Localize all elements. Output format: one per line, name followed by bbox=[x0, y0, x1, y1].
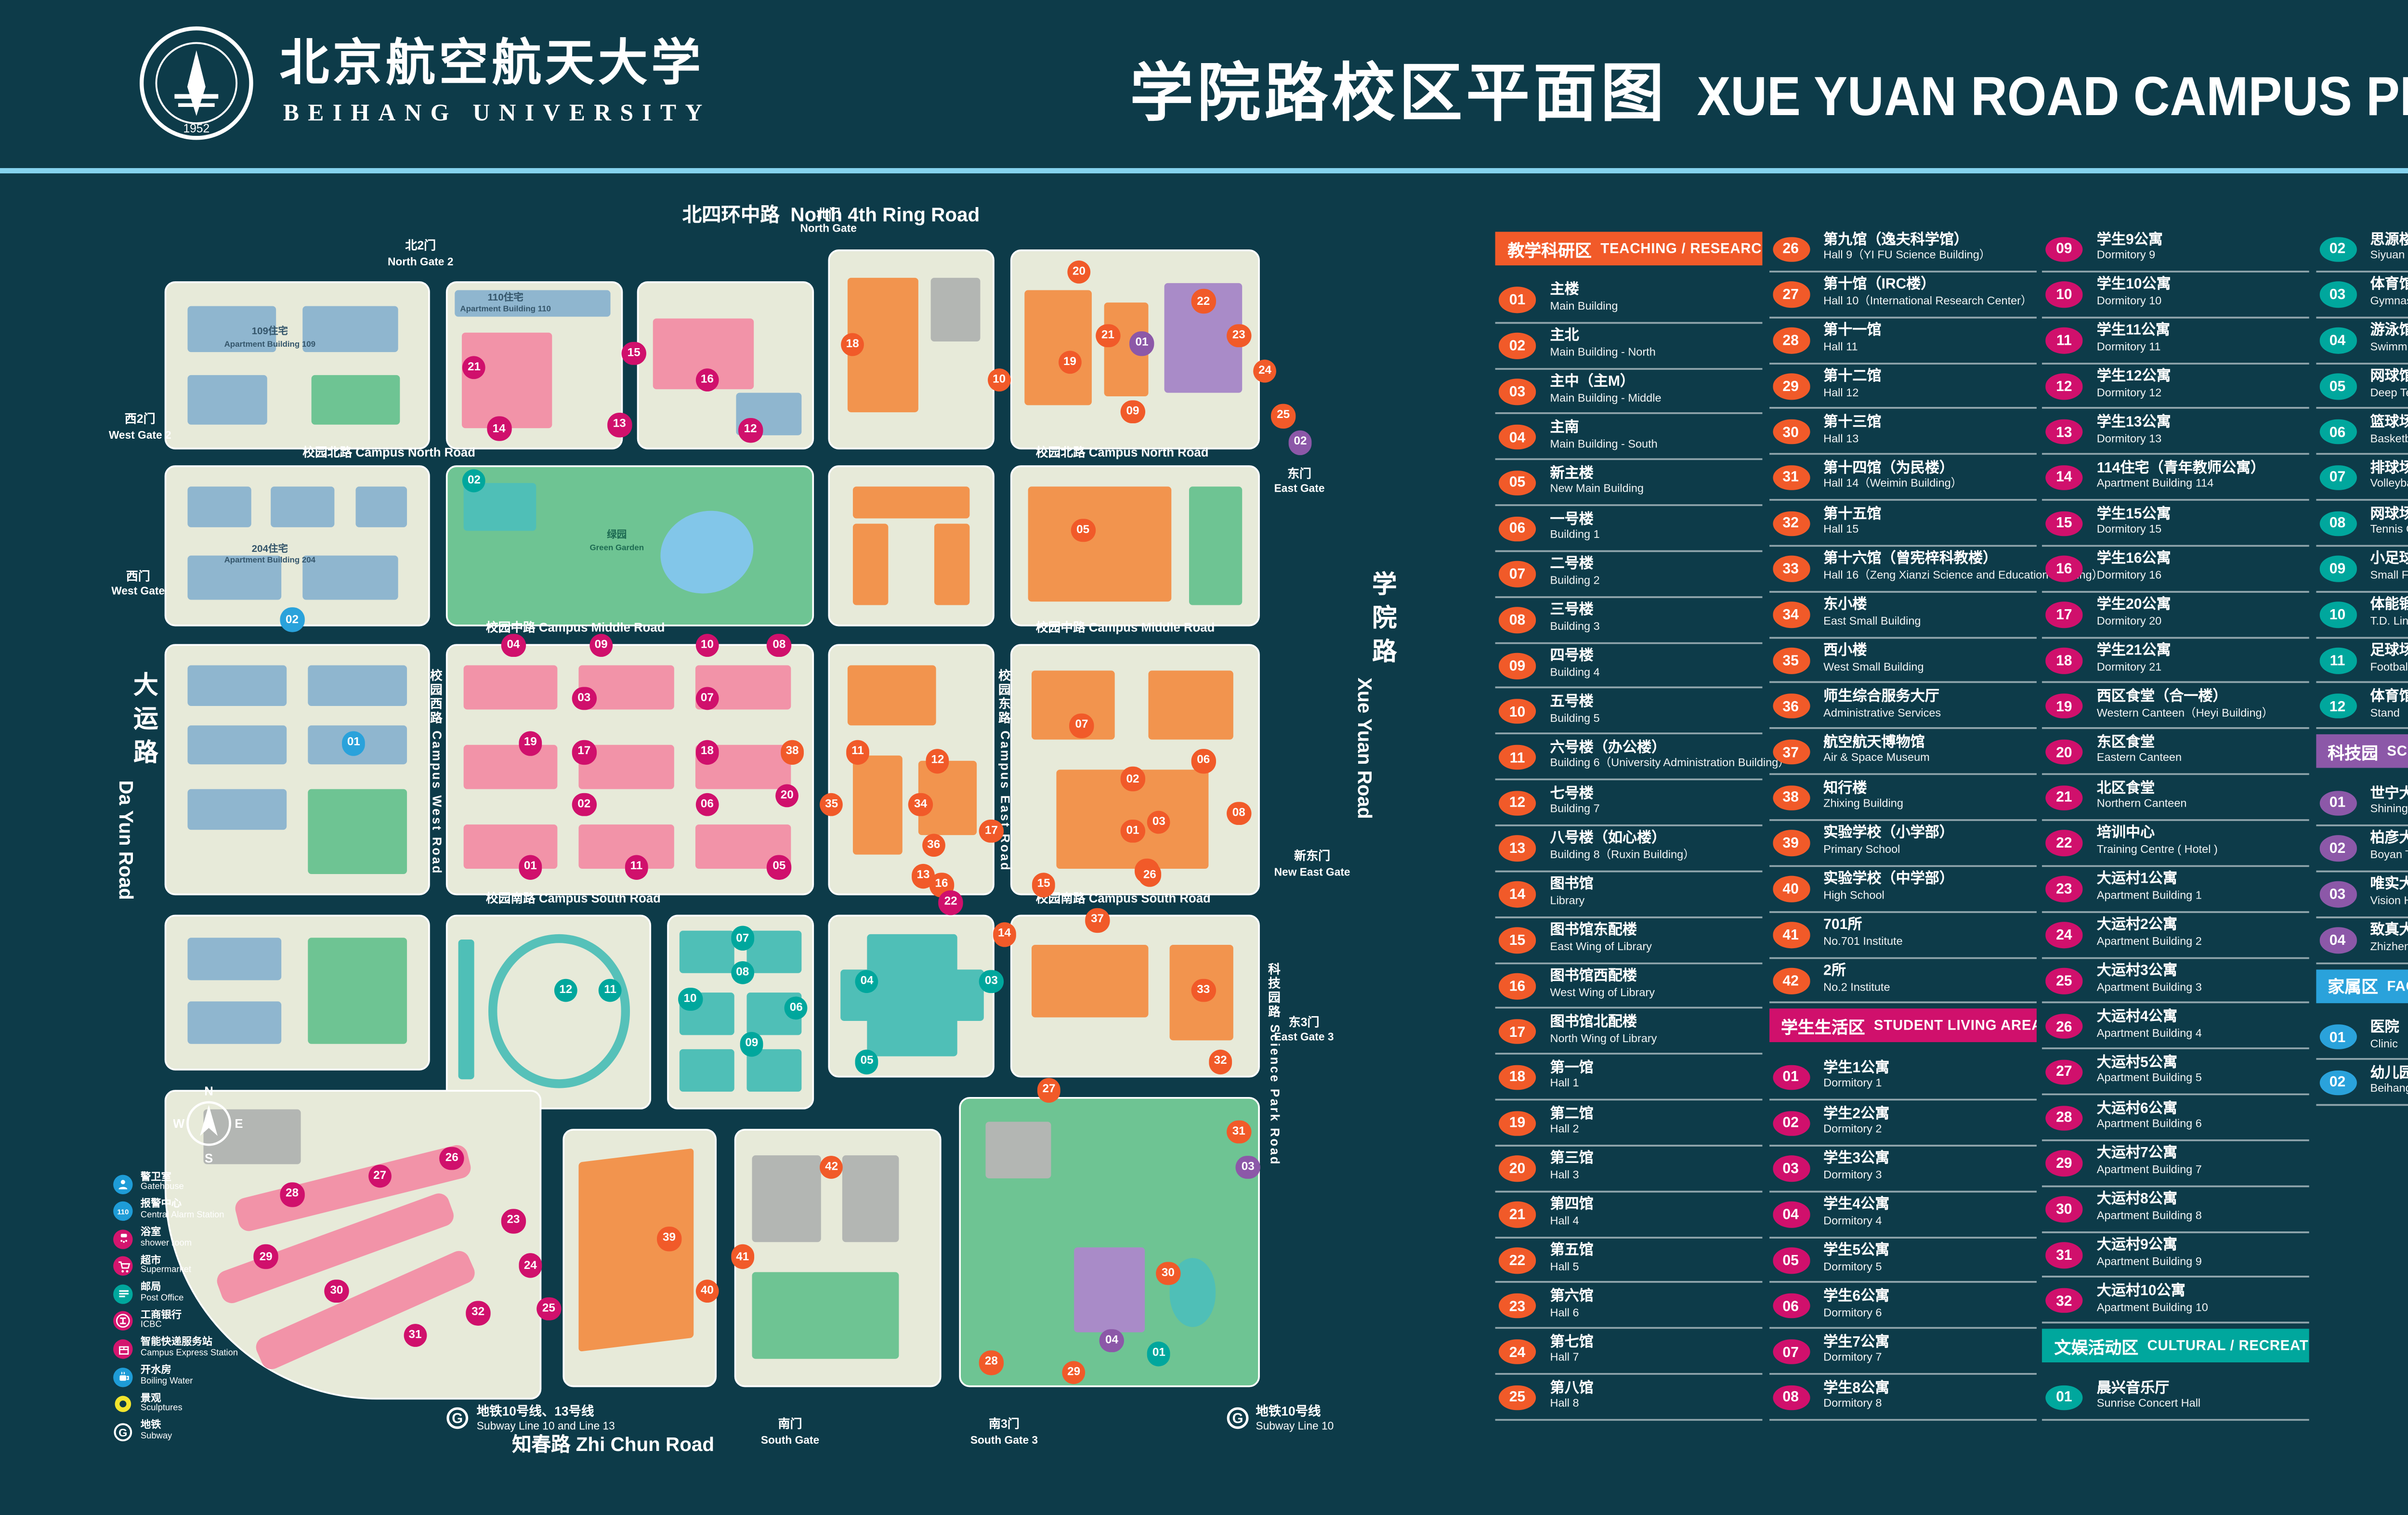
legend-item-number: 30 bbox=[2045, 1196, 2082, 1222]
legend-column: 02 思源楼Siyuan Building03 体育馆Gymnasium04 游… bbox=[2316, 226, 2408, 1421]
map-marker-student-28: 28 bbox=[280, 1182, 304, 1206]
legend-item-number: 16 bbox=[1499, 973, 1536, 999]
legend-item-number: 23 bbox=[2045, 876, 2082, 902]
legend-item-number: 32 bbox=[2045, 1288, 2082, 1313]
legend-item-number: 03 bbox=[2319, 882, 2356, 907]
legend-item-number: 36 bbox=[1772, 693, 1809, 719]
subway-note-lines-10-13: G 地铁10号线、13号线Subway Line 10 and Line 13 bbox=[446, 1403, 615, 1433]
legend-item: 01 主楼Main Building bbox=[1495, 277, 1763, 323]
map-marker-student-16: 16 bbox=[695, 368, 720, 392]
legend-item-label: 第十一馆Hall 11 bbox=[1823, 322, 1881, 356]
legend-item-number: 25 bbox=[1499, 1384, 1536, 1410]
legend-item-label: 世宁大厦Shining Tower bbox=[2370, 785, 2408, 819]
legend-item-label: 四号楼Building 4 bbox=[1550, 648, 1600, 681]
landmark-label: 110住宅Apartment Building 110 bbox=[460, 293, 551, 315]
map-marker-student-10: 10 bbox=[695, 633, 720, 657]
legend-item: 02 幼儿园Beihang Kindergarten bbox=[2316, 1060, 2408, 1106]
legend-item: 07 二号楼Building 2 bbox=[1495, 552, 1763, 598]
legend-item-label: 114住宅（青年教师公寓）Apartment Building 114 bbox=[2097, 459, 2265, 493]
map-marker-student-23: 23 bbox=[501, 1209, 525, 1233]
facility-label: 浴室shower room bbox=[141, 1228, 192, 1250]
legend-item: 08 网球场Tennis Court bbox=[2316, 501, 2408, 547]
legend-item-number: 01 bbox=[1499, 287, 1536, 313]
map-marker-teaching-02: 02 bbox=[1121, 767, 1145, 791]
legend-item-label: 第八馆Hall 8 bbox=[1550, 1379, 1594, 1413]
facility-label: 警卫室Gatehouse bbox=[141, 1173, 184, 1195]
map-marker-teaching-22: 22 bbox=[1191, 289, 1216, 313]
legend-item: 02 柏彦大厦Boyan Tower bbox=[2316, 826, 2408, 872]
legend-item-number: 24 bbox=[2045, 922, 2082, 948]
map-marker-teaching-11: 11 bbox=[846, 740, 870, 764]
map-marker-student-14: 14 bbox=[487, 417, 511, 441]
legend-item: 19 西区食堂（合一楼）Western Canteen（Heyi Buildin… bbox=[2042, 684, 2309, 730]
legend-item-label: 一号楼Building 1 bbox=[1550, 510, 1600, 544]
legend-item-number: 07 bbox=[2319, 465, 2356, 490]
legend-item-number: 14 bbox=[1499, 882, 1536, 907]
gate-label: 西门West Gate bbox=[111, 572, 165, 601]
map-marker-student-11: 11 bbox=[625, 855, 649, 879]
map-marker-student-08: 08 bbox=[767, 633, 791, 657]
legend-item: 10 体能锻炼走廊T.D. Line bbox=[2316, 592, 2408, 638]
shower-icon bbox=[114, 1229, 133, 1248]
legend-item-number: 02 bbox=[1499, 333, 1536, 358]
legend-item-label: 学生10公寓Dormitory 10 bbox=[2097, 276, 2171, 310]
section-title-en: FACULTY / STAFF RESIDENTIAL AREA bbox=[2387, 978, 2408, 993]
map-marker-student-02: 02 bbox=[572, 793, 596, 817]
legend-item-number: 23 bbox=[1499, 1293, 1536, 1319]
campus-road-label: 校园南路 Campus South Road bbox=[1036, 890, 1211, 908]
legend-item-number: 17 bbox=[2045, 602, 2082, 627]
legend-item: 11 学生11公寓Dormitory 11 bbox=[2042, 318, 2309, 364]
legend-item: 26 第九馆（逸夫科学馆）Hall 9（YI FU Science Buildi… bbox=[1768, 226, 2036, 272]
page-title-cn: 学院路校区平面图 bbox=[1130, 42, 1668, 134]
legend-item: 35 西小楼West Small Building bbox=[1768, 638, 2036, 684]
legend-item-number: 08 bbox=[1772, 1384, 1809, 1410]
legend-item-number: 10 bbox=[2045, 282, 2082, 307]
legend-item-label: 图书馆Library bbox=[1550, 876, 1594, 910]
legend-item-number: 11 bbox=[2319, 648, 2356, 673]
gate-label: 北门North Gate bbox=[800, 209, 857, 237]
map-marker-student-26: 26 bbox=[440, 1147, 464, 1171]
facility-item: 浴室shower room bbox=[114, 1228, 238, 1250]
legend-item-label: 学生11公寓Dormitory 11 bbox=[2097, 322, 2170, 356]
legend-item-number: 13 bbox=[2045, 419, 2082, 444]
legend-item: 05 新主楼New Main Building bbox=[1495, 460, 1763, 506]
map-marker-teaching-15: 15 bbox=[1032, 873, 1056, 897]
legend-item-label: 东小楼East Small Building bbox=[1823, 597, 1921, 630]
legend-item-number: 10 bbox=[2319, 602, 2356, 627]
legend-item-label: 主中（主M）Main Building - Middle bbox=[1550, 373, 1662, 407]
legend-item-number: 03 bbox=[1772, 1156, 1809, 1182]
legend-item-number: 20 bbox=[2045, 739, 2082, 765]
campus-road-label: 科技园路 Science Park Road bbox=[1264, 963, 1282, 1166]
legend-item-number: 02 bbox=[2319, 1070, 2356, 1096]
svg-text:G: G bbox=[1231, 1411, 1243, 1426]
map-marker-student-03: 03 bbox=[572, 687, 596, 711]
legend-item: 27 第十馆（IRC楼）Hall 10（International Resear… bbox=[1768, 272, 2036, 318]
legend-section-header-student: 学生生活区 STUDENT LIVING AREA bbox=[1768, 1009, 2036, 1055]
legend-item: 22 第五馆Hall 5 bbox=[1495, 1238, 1763, 1283]
legend-item-label: 大运村2公寓Apartment Building 2 bbox=[2097, 917, 2202, 951]
map-marker-teaching-40: 40 bbox=[695, 1279, 720, 1303]
map-marker-teaching-14: 14 bbox=[993, 923, 1017, 947]
map-marker-cultural-01: 01 bbox=[1147, 1342, 1171, 1366]
legend-item: 09 四号楼Building 4 bbox=[1495, 643, 1763, 689]
map-marker-student-24: 24 bbox=[519, 1254, 543, 1278]
map-marker-student-27: 27 bbox=[368, 1164, 392, 1188]
legend-item-label: 医院Clinic bbox=[2370, 1019, 2399, 1053]
legend-item-label: 第十馆（IRC楼）Hall 10（International Research … bbox=[1823, 276, 2032, 310]
cart-icon bbox=[114, 1257, 133, 1276]
legend-item-label: 篮球场Basketball Court bbox=[2370, 414, 2408, 447]
header: 1952 北京航空航天大学 BEIHANG UNIVERSITY 学院路校区平面… bbox=[0, 0, 2408, 168]
map-marker-student-22: 22 bbox=[939, 891, 963, 915]
map-marker-teaching-19: 19 bbox=[1058, 351, 1082, 375]
section-title-en: TEACHING / RESEARCH AREA bbox=[1600, 241, 1762, 257]
legend-item-number: 22 bbox=[2045, 831, 2082, 856]
legend-item-label: 网球场Tennis Court bbox=[2370, 505, 2408, 539]
page-title-en: XUE YUAN ROAD CAMPUS PLAN bbox=[1696, 65, 2408, 129]
legend-item: 19 第二馆Hall 2 bbox=[1495, 1100, 1763, 1146]
map-marker-student-09: 09 bbox=[589, 633, 613, 657]
legend-item: 20 东区食堂Eastern Canteen bbox=[2042, 730, 2309, 775]
map-marker-teaching-05: 05 bbox=[1071, 519, 1095, 543]
facility-label: 智能快递服务站Campus Express Station bbox=[141, 1338, 238, 1360]
legend-item: 02 主北Main Building - North bbox=[1495, 323, 1763, 369]
legend-item-number: 22 bbox=[1499, 1247, 1536, 1273]
map-block-701-institute bbox=[562, 1128, 716, 1386]
section-title-en: SCIENCE PARK bbox=[2387, 744, 2408, 759]
legend-item-number: 07 bbox=[1499, 562, 1536, 587]
legend-item-label: 二号楼Building 2 bbox=[1550, 556, 1600, 590]
legend-item-label: 培训中心Training Centre ( Hotel ) bbox=[2097, 825, 2218, 859]
section-title-cn: 科技园 bbox=[2328, 739, 2378, 764]
legend-item: 12 体育馆运动场看台Stand bbox=[2316, 684, 2408, 730]
legend-item-label: 学生5公寓Dormitory 5 bbox=[1823, 1242, 1889, 1276]
campus-road-label: 校园西路 Campus West Road bbox=[426, 669, 444, 875]
legend-item: 11 足球场Football Field bbox=[2316, 638, 2408, 684]
legend-item: 08 学生8公寓Dormitory 8 bbox=[1768, 1375, 2036, 1421]
gate-label: 南3门South Gate 3 bbox=[970, 1420, 1038, 1449]
map-marker-teaching-18: 18 bbox=[840, 333, 864, 357]
legend-item-label: 小足球场Small Football Field bbox=[2370, 551, 2408, 585]
legend-item-label: 学生2公寓Dormitory 2 bbox=[1823, 1105, 1889, 1139]
legend-item-label: 图书馆西配楼West Wing of Library bbox=[1550, 968, 1655, 1002]
legend-item-number: 24 bbox=[1499, 1339, 1536, 1364]
legend-item-number: 04 bbox=[1772, 1202, 1809, 1228]
subway-icon: G bbox=[114, 1422, 133, 1441]
map-marker-teaching-36: 36 bbox=[922, 834, 946, 858]
legend-item-label: 学生21公寓Dormitory 21 bbox=[2097, 642, 2171, 676]
map-marker-science-02: 02 bbox=[1288, 431, 1312, 455]
landmark-label: 204住宅Apartment Building 204 bbox=[224, 544, 315, 566]
legend-item-number: 01 bbox=[2319, 1024, 2356, 1050]
legend-item: 01 医院Clinic bbox=[2316, 1015, 2408, 1060]
post-icon bbox=[114, 1284, 133, 1304]
legend-item-number: 25 bbox=[2045, 968, 2082, 993]
map-block-zhixing bbox=[829, 644, 995, 896]
legend-item-label: 三号楼Building 3 bbox=[1550, 602, 1600, 636]
subway-icon: G bbox=[1226, 1407, 1249, 1430]
campus-road-label: 校园北路 Campus North Road bbox=[302, 444, 475, 462]
map-marker-teaching-34: 34 bbox=[909, 793, 933, 817]
legend-item-label: 学生1公寓Dormitory 1 bbox=[1823, 1059, 1889, 1093]
legend-section-header-science: 科技园 SCIENCE PARK bbox=[2316, 735, 2408, 781]
legend-item: 34 东小楼East Small Building bbox=[1768, 592, 2036, 638]
box-icon bbox=[114, 1340, 133, 1359]
legend-item-label: 致真大厦Zhizhen Tower bbox=[2370, 922, 2408, 956]
legend-item-number: 19 bbox=[1499, 1110, 1536, 1136]
legend-item-label: 晨兴音乐厅Sunrise Concert Hall bbox=[2097, 1379, 2200, 1413]
legend-item-label: 排球场Volleyball Court bbox=[2370, 459, 2408, 493]
legend-item-label: 图书馆东配楼East Wing of Library bbox=[1550, 922, 1652, 956]
legend-item-number: 29 bbox=[1772, 373, 1809, 399]
map-block-residential-sw bbox=[165, 644, 431, 896]
legend-item-label: 幼儿园Beihang Kindergarten bbox=[2370, 1065, 2408, 1098]
legend-item: 23 第六馆Hall 6 bbox=[1495, 1283, 1763, 1329]
map-marker-teaching-10: 10 bbox=[987, 368, 1011, 392]
legend-item-label: 足球场Football Field bbox=[2370, 642, 2408, 676]
legend-item-label: 实验学校（小学部）Primary School bbox=[1823, 825, 1954, 859]
map-marker-teaching-21: 21 bbox=[1096, 324, 1120, 348]
legend-item: 02 学生2公寓Dormitory 2 bbox=[1768, 1100, 2036, 1146]
legend-item: 20 第三馆Hall 3 bbox=[1495, 1146, 1763, 1192]
legend-item: 04 致真大厦Zhizhen Tower bbox=[2316, 918, 2408, 964]
map-marker-student-32: 32 bbox=[466, 1301, 490, 1325]
legend-item: 22 培训中心Training Centre ( Hotel ) bbox=[2042, 821, 2309, 867]
legend-item-label: 大运村5公寓Apartment Building 5 bbox=[2097, 1054, 2202, 1088]
map-marker-teaching-20: 20 bbox=[1067, 260, 1091, 284]
map-marker-student-17: 17 bbox=[572, 740, 596, 764]
legend-item-number: 05 bbox=[2319, 373, 2356, 399]
legend-item-label: 学生7公寓Dormitory 7 bbox=[1823, 1333, 1889, 1367]
facility-legend: 警卫室Gatehouse110 报警中心Central Alarm Statio… bbox=[114, 1173, 238, 1449]
legend-item-label: 第十四馆（为民楼）Hall 14（Weimin Building） bbox=[1823, 459, 1962, 493]
landmark-label: 绿园Green Garden bbox=[589, 531, 644, 553]
legend-item: 15 学生15公寓Dormitory 15 bbox=[2042, 501, 2309, 547]
map-block-new-main-building bbox=[1009, 466, 1259, 626]
legend-item-number: 35 bbox=[1772, 648, 1809, 673]
facility-item: 警卫室Gatehouse bbox=[114, 1173, 238, 1195]
map-marker-cultural-05: 05 bbox=[855, 1050, 879, 1074]
legend-item-label: 学生12公寓Dormitory 12 bbox=[2097, 368, 2171, 402]
map-marker-teaching-42: 42 bbox=[820, 1156, 844, 1180]
legend-item-label: 游泳馆Swimming Pool bbox=[2370, 322, 2408, 356]
legend-item-number: 15 bbox=[1499, 927, 1536, 953]
map-marker-student-30: 30 bbox=[325, 1279, 349, 1303]
legend-item: 01 学生1公寓Dormitory 1 bbox=[1768, 1055, 2036, 1100]
map-marker-science-01: 01 bbox=[1130, 331, 1154, 355]
legend-item-number: 04 bbox=[2319, 927, 2356, 953]
legend-item-number: 12 bbox=[1499, 790, 1536, 816]
campus-road-label: 校园南路 Campus South Road bbox=[486, 890, 661, 908]
map-marker-teaching-06: 06 bbox=[1191, 749, 1216, 773]
page-title: 学院路校区平面图 XUE YUAN ROAD CAMPUS PLAN bbox=[1130, 42, 2408, 134]
legend-item-number: 29 bbox=[2045, 1151, 2082, 1176]
legend-item-label: 第十五馆Hall 15 bbox=[1823, 505, 1881, 539]
legend-item: 17 图书馆北配楼North Wing of Library bbox=[1495, 1009, 1763, 1055]
legend-item-number: 01 bbox=[2045, 1384, 2082, 1410]
facility-label: 工商银行ICBC bbox=[141, 1311, 182, 1333]
legend-item-number: 02 bbox=[2319, 236, 2356, 261]
legend-item-number: 05 bbox=[1499, 470, 1536, 496]
legend-item-label: 八号楼（如心楼）Building 8（Ruxin Building） bbox=[1550, 831, 1695, 864]
legend-item-label: 思源楼Siyuan Building bbox=[2370, 231, 2408, 264]
legend-item: 21 第四馆Hall 4 bbox=[1495, 1192, 1763, 1238]
legend-item-label: 主楼Main Building bbox=[1550, 282, 1618, 315]
legend-section-header-cultural: 文娱活动区 CULTURAL / RECREATIONAL AREA bbox=[2042, 1329, 2309, 1375]
legend-item-label: 学生6公寓Dormitory 6 bbox=[1823, 1288, 1889, 1321]
legend-item: 06 篮球场Basketball Court bbox=[2316, 409, 2408, 455]
legend-item: 12 学生12公寓Dormitory 12 bbox=[2042, 364, 2309, 409]
map-marker-teaching-12: 12 bbox=[926, 749, 950, 773]
legend-item: 18 学生21公寓Dormitory 21 bbox=[2042, 638, 2309, 684]
legend-item-number: 09 bbox=[2045, 236, 2082, 261]
legend-item-label: 大运村10公寓Apartment Building 10 bbox=[2097, 1282, 2208, 1316]
legend-item-label: 第七馆Hall 7 bbox=[1550, 1333, 1594, 1367]
svg-text:G: G bbox=[119, 1426, 128, 1438]
facility-item: 景观Sculptures bbox=[114, 1394, 238, 1416]
legend-item: 12 七号楼Building 7 bbox=[1495, 781, 1763, 826]
legend-item-label: 网球馆Deep Tennis Club bbox=[2370, 368, 2408, 402]
map-marker-student-13: 13 bbox=[607, 413, 631, 437]
facility-label: 地铁Subway bbox=[141, 1421, 172, 1443]
gate-label: 南门South Gate bbox=[761, 1420, 819, 1449]
svg-text:E: E bbox=[236, 1118, 244, 1132]
bank-icon bbox=[114, 1312, 133, 1331]
map-marker-cultural-08: 08 bbox=[731, 961, 755, 985]
legend-column: 教学科研区 TEACHING / RESEARCH AREA01 主楼Main … bbox=[1495, 226, 1763, 1421]
section-title-en: STUDENT LIVING AREA bbox=[1874, 1018, 2036, 1034]
section-title-en: CULTURAL / RECREATIONAL AREA bbox=[2147, 1338, 2309, 1354]
legend-item-number: 40 bbox=[1772, 876, 1809, 902]
map-marker-teaching-41: 41 bbox=[731, 1245, 755, 1269]
map-marker-teaching-01: 01 bbox=[1121, 819, 1145, 843]
map-block-residential-nw bbox=[165, 281, 431, 450]
legend-item-label: 2所No.2 Institute bbox=[1823, 963, 1890, 996]
header-divider bbox=[0, 168, 2408, 172]
legend-section-header-teaching: 教学科研区 TEACHING / RESEARCH AREA bbox=[1495, 232, 1763, 277]
poster: 1952 北京航空航天大学 BEIHANG UNIVERSITY 学院路校区平面… bbox=[0, 0, 2408, 1515]
legend-item-label: 大运村6公寓Apartment Building 6 bbox=[2097, 1100, 2202, 1134]
alarm-icon: 110 bbox=[114, 1202, 133, 1221]
road-label-west: 大运路 Da Yun Road bbox=[114, 669, 178, 900]
legend-item-number: 39 bbox=[1772, 831, 1809, 856]
legend-item-number: 38 bbox=[1772, 785, 1809, 810]
map-marker-science-03: 03 bbox=[1236, 1156, 1260, 1180]
legend: 教学科研区 TEACHING / RESEARCH AREA01 主楼Main … bbox=[1495, 226, 2408, 1421]
legend-item-number: 09 bbox=[2319, 556, 2356, 582]
section-title-cn: 文娱活动区 bbox=[2055, 1333, 2139, 1358]
legend-item: 03 唯实大厦Vision Hotel bbox=[2316, 872, 2408, 918]
map-marker-cultural-04: 04 bbox=[855, 970, 879, 994]
legend-item-label: 学生9公寓Dormitory 9 bbox=[2097, 231, 2163, 264]
legend-column: 26 第九馆（逸夫科学馆）Hall 9（YI FU Science Buildi… bbox=[1768, 226, 2036, 1421]
map-marker-teaching-29: 29 bbox=[1062, 1361, 1086, 1385]
legend-item-label: 第二馆Hall 2 bbox=[1550, 1105, 1594, 1139]
legend-item-number: 05 bbox=[1772, 1247, 1809, 1273]
legend-item-number: 31 bbox=[2045, 1242, 2082, 1267]
section-title-cn: 家属区 bbox=[2328, 973, 2378, 998]
legend-item: 03 主中（主M）Main Building - Middle bbox=[1495, 369, 1763, 415]
map-marker-teaching-32: 32 bbox=[1208, 1050, 1232, 1074]
map-marker-teaching-39: 39 bbox=[657, 1227, 681, 1251]
legend-item-number: 30 bbox=[1772, 419, 1809, 444]
legend-item-number: 26 bbox=[1772, 236, 1809, 261]
legend-item-number: 26 bbox=[2045, 1014, 2082, 1039]
legend-section-header-faculty: 家属区 FACULTY / STAFF RESIDENTIAL AREA bbox=[2316, 969, 2408, 1015]
legend-item-number: 34 bbox=[1772, 602, 1809, 627]
legend-item: 08 三号楼Building 3 bbox=[1495, 598, 1763, 643]
legend-item: 37 航空航天博物馆Air & Space Museum bbox=[1768, 730, 2036, 775]
legend-item-number: 28 bbox=[2045, 1105, 2082, 1131]
legend-item: 06 一号楼Building 1 bbox=[1495, 506, 1763, 552]
legend-item-label: 东区食堂Eastern Canteen bbox=[2097, 734, 2182, 768]
legend-item: 28 大运村6公寓Apartment Building 6 bbox=[2042, 1095, 2309, 1141]
legend-item-number: 15 bbox=[2045, 510, 2082, 536]
legend-item: 04 学生4公寓Dormitory 4 bbox=[1768, 1192, 2036, 1238]
facility-item: 邮局Post Office bbox=[114, 1283, 238, 1305]
legend-item-number: 12 bbox=[2045, 373, 2082, 399]
map-marker-cultural-11: 11 bbox=[598, 979, 622, 1003]
legend-item-label: 实验学校（中学部）High School bbox=[1823, 871, 1954, 905]
legend-item: 14 图书馆Library bbox=[1495, 872, 1763, 918]
map-marker-cultural-06: 06 bbox=[784, 996, 808, 1020]
map-marker-student-15: 15 bbox=[622, 341, 646, 366]
legend-item: 29 大运村7公寓Apartment Building 7 bbox=[2042, 1141, 2309, 1187]
legend-item: 09 小足球场Small Football Field bbox=[2316, 547, 2408, 592]
legend-item-number: 08 bbox=[1499, 607, 1536, 633]
legend-item: 38 知行楼Zhixing Building bbox=[1768, 775, 2036, 821]
legend-item-label: 学生4公寓Dormitory 4 bbox=[1823, 1196, 1889, 1230]
legend-item-label: 学生15公寓Dormitory 15 bbox=[2097, 505, 2171, 539]
svg-text:G: G bbox=[453, 1411, 464, 1426]
map-marker-teaching-37: 37 bbox=[1086, 909, 1110, 933]
facility-item: 工商银行ICBC bbox=[114, 1311, 238, 1333]
legend-item-label: 体育馆运动场看台Stand bbox=[2370, 688, 2408, 722]
legend-item: 33 第十六馆（曾宪梓科教楼）Hall 16（Zeng Xianzi Scien… bbox=[1768, 547, 2036, 592]
facility-item: 110 报警中心Central Alarm Station bbox=[114, 1200, 238, 1222]
map-marker-student-20: 20 bbox=[775, 784, 799, 808]
svg-text:W: W bbox=[174, 1118, 186, 1132]
map-marker-teaching-24: 24 bbox=[1253, 359, 1277, 383]
legend-item: 36 师生综合服务大厅Administrative Services bbox=[1768, 684, 2036, 730]
map-block-residential-s bbox=[165, 914, 431, 1071]
legend-item: 13 学生13公寓Dormitory 13 bbox=[2042, 409, 2309, 455]
legend-item: 41 701所No.701 Institute bbox=[1768, 913, 2036, 958]
facility-label: 开水房Boiling Water bbox=[141, 1366, 193, 1388]
legend-item-number: 18 bbox=[1499, 1065, 1536, 1090]
legend-item: 29 第十二馆Hall 12 bbox=[1768, 364, 2036, 409]
cup-icon bbox=[114, 1367, 133, 1386]
legend-item-label: 知行楼Zhixing Building bbox=[1823, 780, 1903, 813]
legend-item-number: 21 bbox=[1499, 1202, 1536, 1228]
svg-text:1952: 1952 bbox=[183, 122, 209, 135]
legend-item-number: 13 bbox=[1499, 836, 1536, 862]
map-marker-student-29: 29 bbox=[254, 1245, 278, 1269]
legend-item: 16 学生16公寓Dormitory 16 bbox=[2042, 547, 2309, 592]
legend-item: 03 体育馆Gymnasium bbox=[2316, 272, 2408, 318]
legend-item-number: 09 bbox=[1499, 653, 1536, 679]
legend-column: 09 学生9公寓Dormitory 910 学生10公寓Dormitory 10… bbox=[2042, 226, 2309, 1421]
legend-item-label: 唯实大厦Vision Hotel bbox=[2370, 876, 2408, 910]
legend-item-label: 大运村9公寓Apartment Building 9 bbox=[2097, 1237, 2202, 1270]
legend-item-label: 柏彦大厦Boyan Tower bbox=[2370, 831, 2408, 864]
svg-text:110: 110 bbox=[118, 1209, 130, 1216]
legend-item-label: 新主楼New Main Building bbox=[1550, 465, 1644, 498]
legend-item-number: 20 bbox=[1499, 1156, 1536, 1182]
legend-item-label: 第四馆Hall 4 bbox=[1550, 1196, 1594, 1230]
